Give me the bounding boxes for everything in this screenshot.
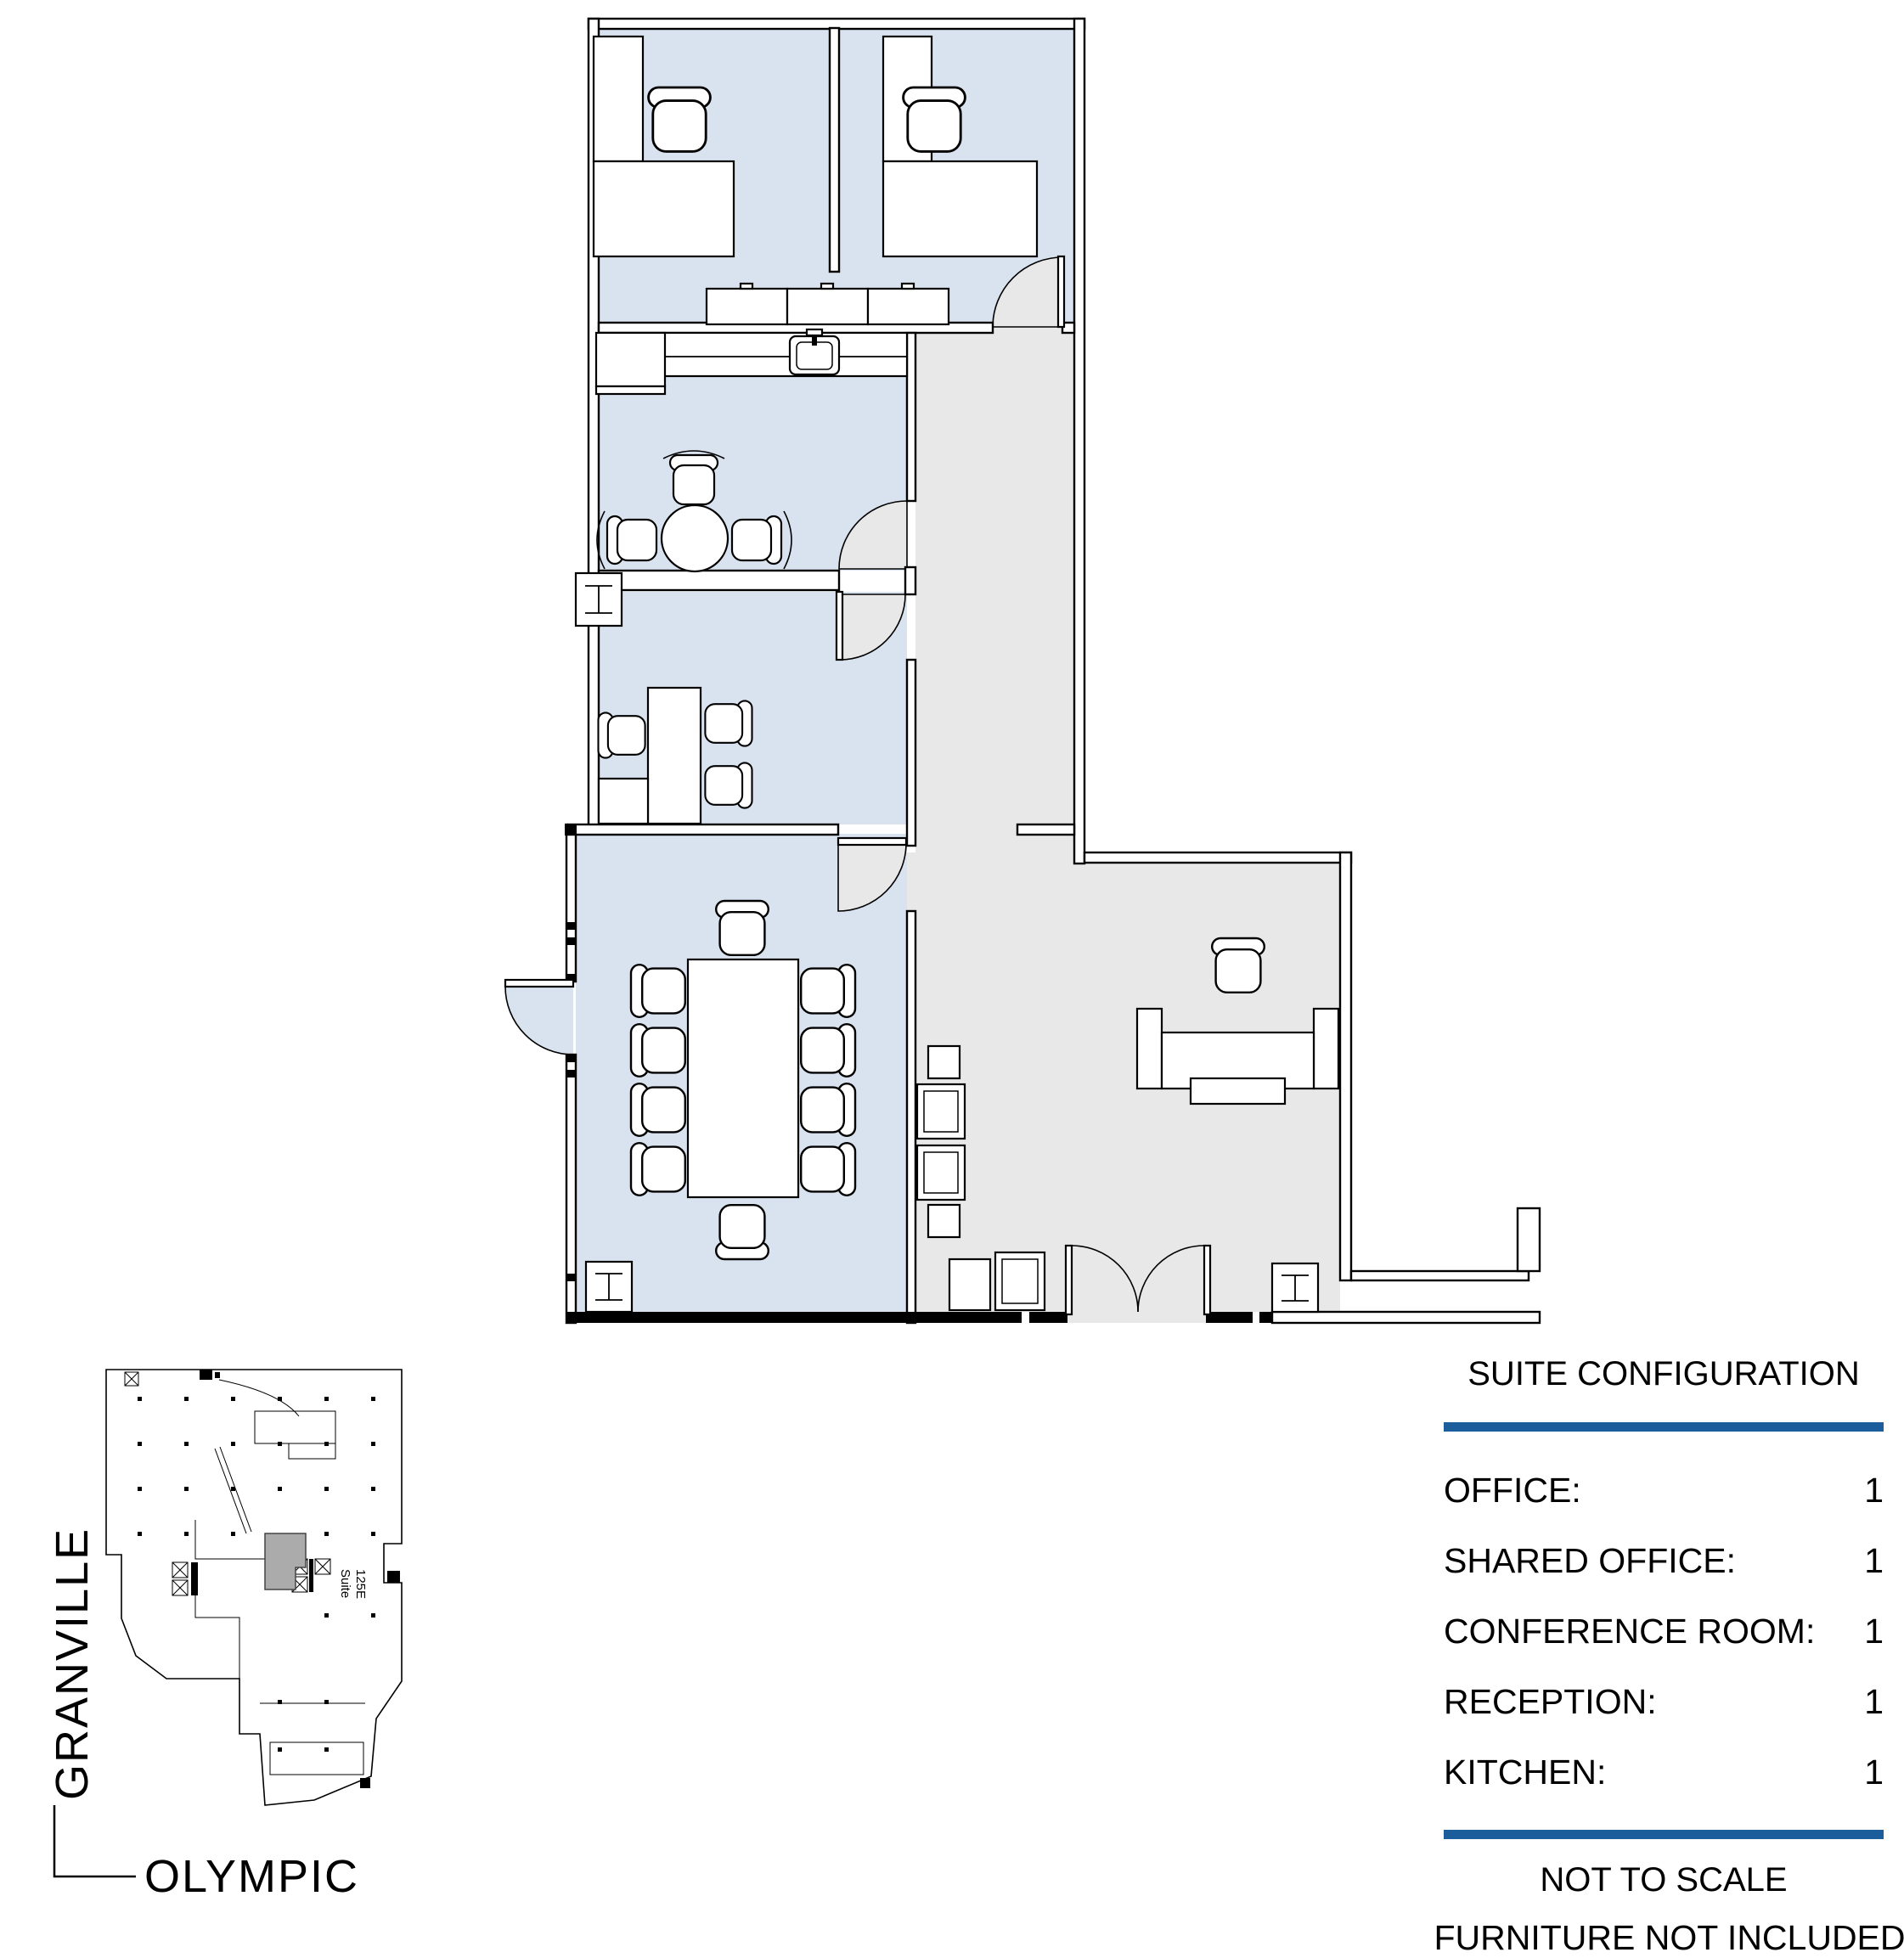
legend-label: SHARED OFFICE: xyxy=(1444,1541,1736,1581)
conference-door xyxy=(838,838,906,845)
locator-suite-label-2: 125E xyxy=(353,1569,368,1599)
corridor-floor xyxy=(915,327,1084,863)
street-label-granville: GRANVILLE xyxy=(47,1528,98,1800)
legend-value: 1 xyxy=(1864,1753,1884,1792)
shared-office-divider-wall xyxy=(830,28,839,272)
chair-icon xyxy=(801,965,855,1017)
conference-table xyxy=(688,959,798,1197)
legend-row-office: OFFICE: 1 xyxy=(1444,1455,1884,1526)
chair-icon xyxy=(670,455,718,504)
legend-value: 1 xyxy=(1864,1682,1884,1722)
legend-value: 1 xyxy=(1864,1471,1884,1511)
office-chair-icon xyxy=(904,87,966,151)
reception-desk xyxy=(1137,1009,1162,1089)
entry-threshold xyxy=(1067,1312,1206,1323)
legend-divider-bottom xyxy=(1444,1830,1884,1839)
guest-chair-icon xyxy=(705,700,752,746)
entry-door-right xyxy=(1204,1246,1210,1314)
office-chair-icon xyxy=(649,87,711,151)
street-corner-bracket xyxy=(54,1805,136,1876)
cabinet xyxy=(594,37,643,161)
desk xyxy=(594,161,734,256)
chair-icon xyxy=(631,965,685,1017)
column-icon xyxy=(1272,1263,1318,1312)
note-furniture-not-included: FURNITURE NOT INCLUDED xyxy=(1432,1918,1904,1958)
locator-map: Suite 125E xyxy=(106,1370,402,1805)
column-icon xyxy=(586,1262,632,1312)
locator-suite-label-1: Suite xyxy=(338,1569,352,1598)
guest-chair-icon xyxy=(705,762,752,807)
legend-label: CONFERENCE ROOM: xyxy=(1444,1612,1815,1651)
street-label-olympic: OLYMPIC xyxy=(144,1851,359,1902)
legend-title: SUITE CONFIGURATION xyxy=(1444,1355,1884,1393)
legend-value: 1 xyxy=(1864,1541,1884,1581)
legend-rows: OFFICE: 1 SHARED OFFICE: 1 CONFERENCE RO… xyxy=(1444,1455,1884,1808)
chair-icon xyxy=(732,516,781,564)
conference-exit-door-swing xyxy=(505,987,573,1055)
suite-highlight xyxy=(265,1533,306,1589)
chair-icon xyxy=(607,516,656,564)
office-door xyxy=(837,592,842,660)
chair-icon xyxy=(716,1205,769,1259)
chair-icon xyxy=(801,1143,855,1196)
shared-office-door xyxy=(1058,256,1064,327)
office-chair-icon xyxy=(599,712,645,757)
legend-row-shared-office: SHARED OFFICE: 1 xyxy=(1444,1526,1884,1596)
chair-icon xyxy=(801,1024,855,1077)
legend-label: RECEPTION: xyxy=(1444,1682,1657,1722)
suite-configuration-legend: SUITE CONFIGURATION OFFICE: 1 SHARED OFF… xyxy=(1444,1355,1884,1958)
chair-icon xyxy=(631,1143,685,1196)
legend-row-conference-room: CONFERENCE ROOM: 1 xyxy=(1444,1596,1884,1667)
credenza xyxy=(707,289,787,324)
chair-icon xyxy=(716,901,769,955)
elevator-core-icon xyxy=(172,1562,198,1595)
desk xyxy=(883,161,1037,256)
legend-divider-top xyxy=(1444,1422,1884,1432)
credenza xyxy=(868,289,949,324)
legend-value: 1 xyxy=(1864,1612,1884,1651)
desk xyxy=(648,688,701,824)
chair-icon xyxy=(801,1083,855,1136)
note-not-to-scale: NOT TO SCALE xyxy=(1444,1861,1884,1899)
file-cabinet xyxy=(928,1046,960,1078)
cabinet xyxy=(949,1259,990,1310)
legend-row-kitchen: KITCHEN: 1 xyxy=(1444,1737,1884,1808)
chair-icon xyxy=(631,1024,685,1077)
office-chair-icon xyxy=(1212,938,1265,993)
legend-label: KITCHEN: xyxy=(1444,1753,1606,1792)
floor-plan-page: { "legend": { "title": "SUITE CONFIGURAT… xyxy=(0,0,1904,1914)
file-cabinet xyxy=(928,1205,960,1237)
round-table xyxy=(662,505,728,571)
legend-label: OFFICE: xyxy=(1444,1471,1581,1511)
conference-exit-door xyxy=(505,980,573,987)
refrigerator xyxy=(596,333,665,386)
credenza xyxy=(787,289,868,324)
chair-icon xyxy=(631,1083,685,1136)
reception-counter xyxy=(1191,1078,1285,1104)
reception-desk xyxy=(1314,1009,1338,1089)
entry-door-left xyxy=(1066,1246,1072,1314)
legend-row-reception: RECEPTION: 1 xyxy=(1444,1667,1884,1737)
column-icon xyxy=(576,573,622,626)
desk-return xyxy=(599,779,648,824)
faucet-icon xyxy=(807,329,822,335)
